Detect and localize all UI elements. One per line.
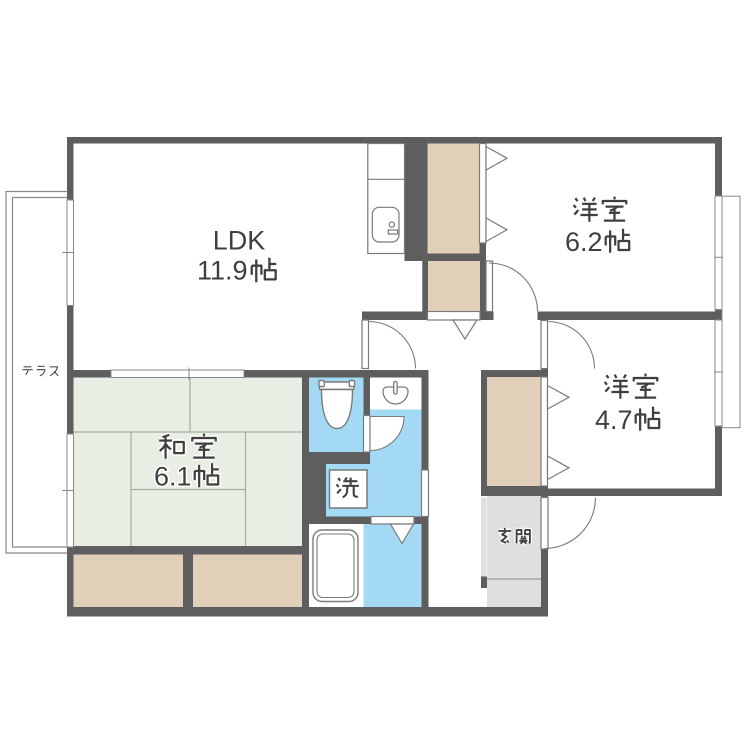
svg-text:LDK: LDK — [213, 226, 266, 256]
svg-text:6.1: 6.1 — [154, 462, 192, 492]
svg-text:4.7: 4.7 — [595, 405, 633, 435]
svg-text:11.9: 11.9 — [197, 256, 248, 286]
svg-text:6.2: 6.2 — [565, 227, 603, 257]
